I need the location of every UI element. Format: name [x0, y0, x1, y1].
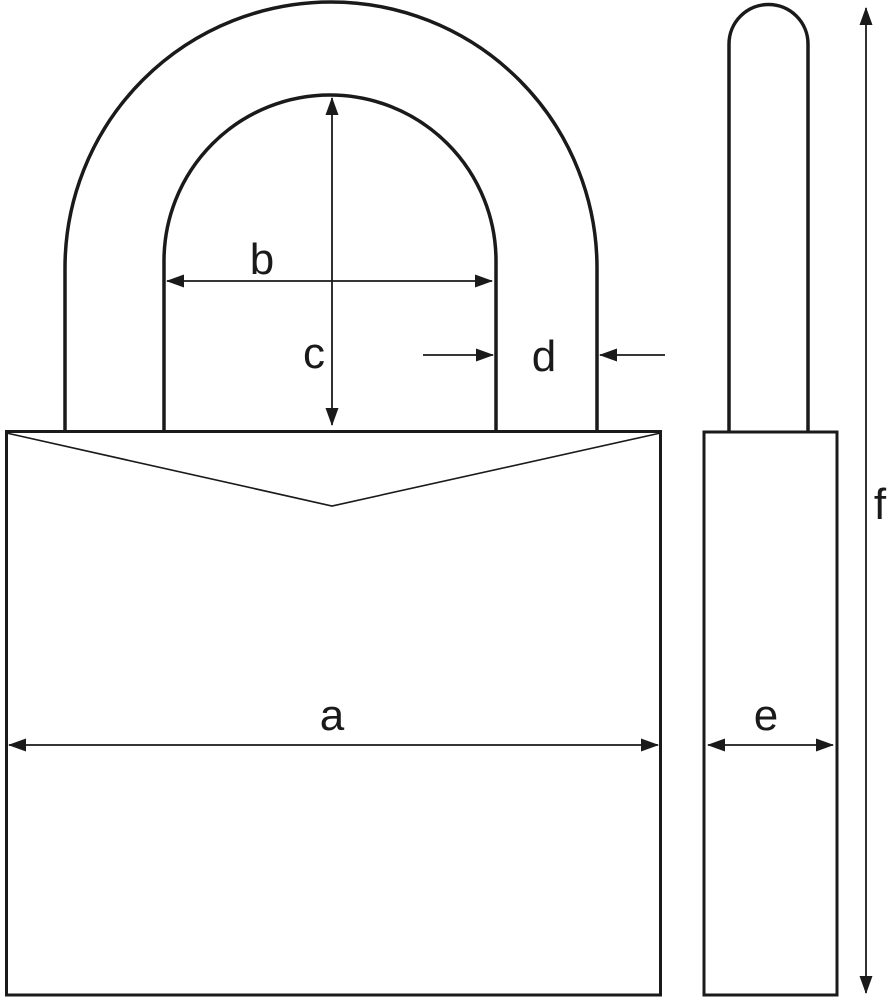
padlock-dimension-diagram: b c d a e f: [0, 0, 889, 1000]
dim-b-label: b: [250, 235, 274, 284]
front-shackle-outline: [65, 2, 597, 434]
dim-f-label: f: [874, 480, 887, 529]
side-shackle-outline: [729, 4, 808, 434]
front-view: [7, 2, 661, 995]
dim-c-label: c: [303, 329, 325, 378]
side-view: [704, 4, 837, 995]
dim-d-label: d: [532, 332, 556, 381]
dim-e-label: e: [754, 691, 778, 740]
dim-a-label: a: [320, 691, 345, 740]
